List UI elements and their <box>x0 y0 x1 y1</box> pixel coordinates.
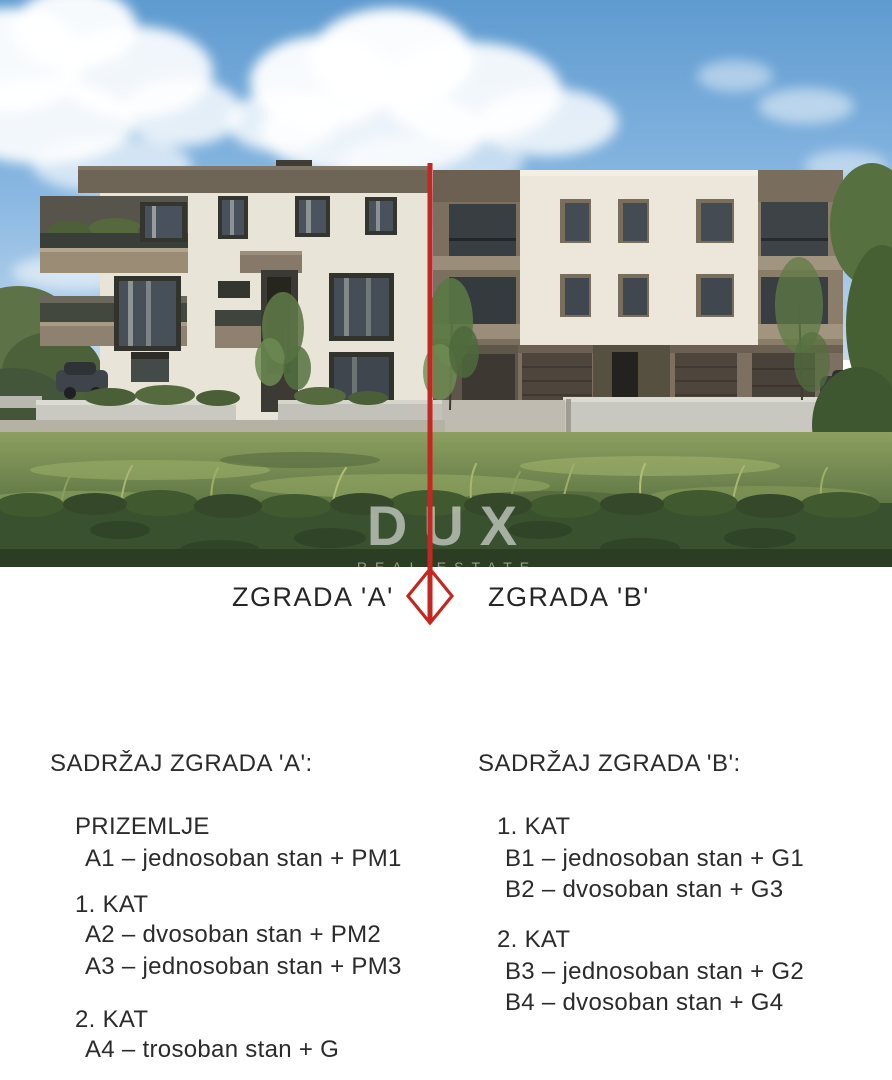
unit-item-a4: A4 – trosoban stan + G <box>85 1036 339 1064</box>
floor-heading-prizemlje: PRIZEMLJE <box>75 813 210 841</box>
unit-item-b3: B3 – jednosoban stan + G2 <box>505 958 804 986</box>
diamond-divider-icon <box>408 569 452 623</box>
listing-flyer: DUX REAL ESTATE ZGRADA 'A' ZGRADA 'B' SA… <box>0 0 892 1080</box>
building-a <box>0 160 445 446</box>
floor-heading-b-kat2: 2. KAT <box>497 926 570 954</box>
unit-item-b1: B1 – jednosoban stan + G1 <box>505 845 804 873</box>
unit-item-a2: A2 – dvosoban stan + PM2 <box>85 921 381 949</box>
watermark: DUX REAL ESTATE <box>357 494 537 567</box>
unit-item-a3: A3 – jednosoban stan + PM3 <box>85 953 402 981</box>
unit-item-b2: B2 – dvosoban stan + G3 <box>505 876 783 904</box>
section-b-title: SADRŽAJ ZGRADA 'B': <box>478 750 741 778</box>
building-rendering-photo: DUX REAL ESTATE <box>0 0 892 567</box>
label-zgrada-b: ZGRADA 'B' <box>488 582 650 613</box>
b-windows-row1 <box>560 199 734 243</box>
floor-heading-a-kat1: 1. KAT <box>75 891 148 919</box>
watermark-tagline: REAL ESTATE <box>357 559 537 567</box>
b-windows-row2 <box>560 274 734 317</box>
unit-item-a1: A1 – jednosoban stan + PM1 <box>85 845 402 873</box>
unit-item-b4: B4 – dvosoban stan + G4 <box>505 989 783 1017</box>
floor-heading-b-kat1: 1. KAT <box>497 813 570 841</box>
section-a-title: SADRŽAJ ZGRADA 'A': <box>50 750 313 778</box>
label-zgrada-a: ZGRADA 'A' <box>232 582 394 613</box>
watermark-brand: DUX <box>367 494 533 557</box>
floor-heading-a-kat2: 2. KAT <box>75 1006 148 1034</box>
